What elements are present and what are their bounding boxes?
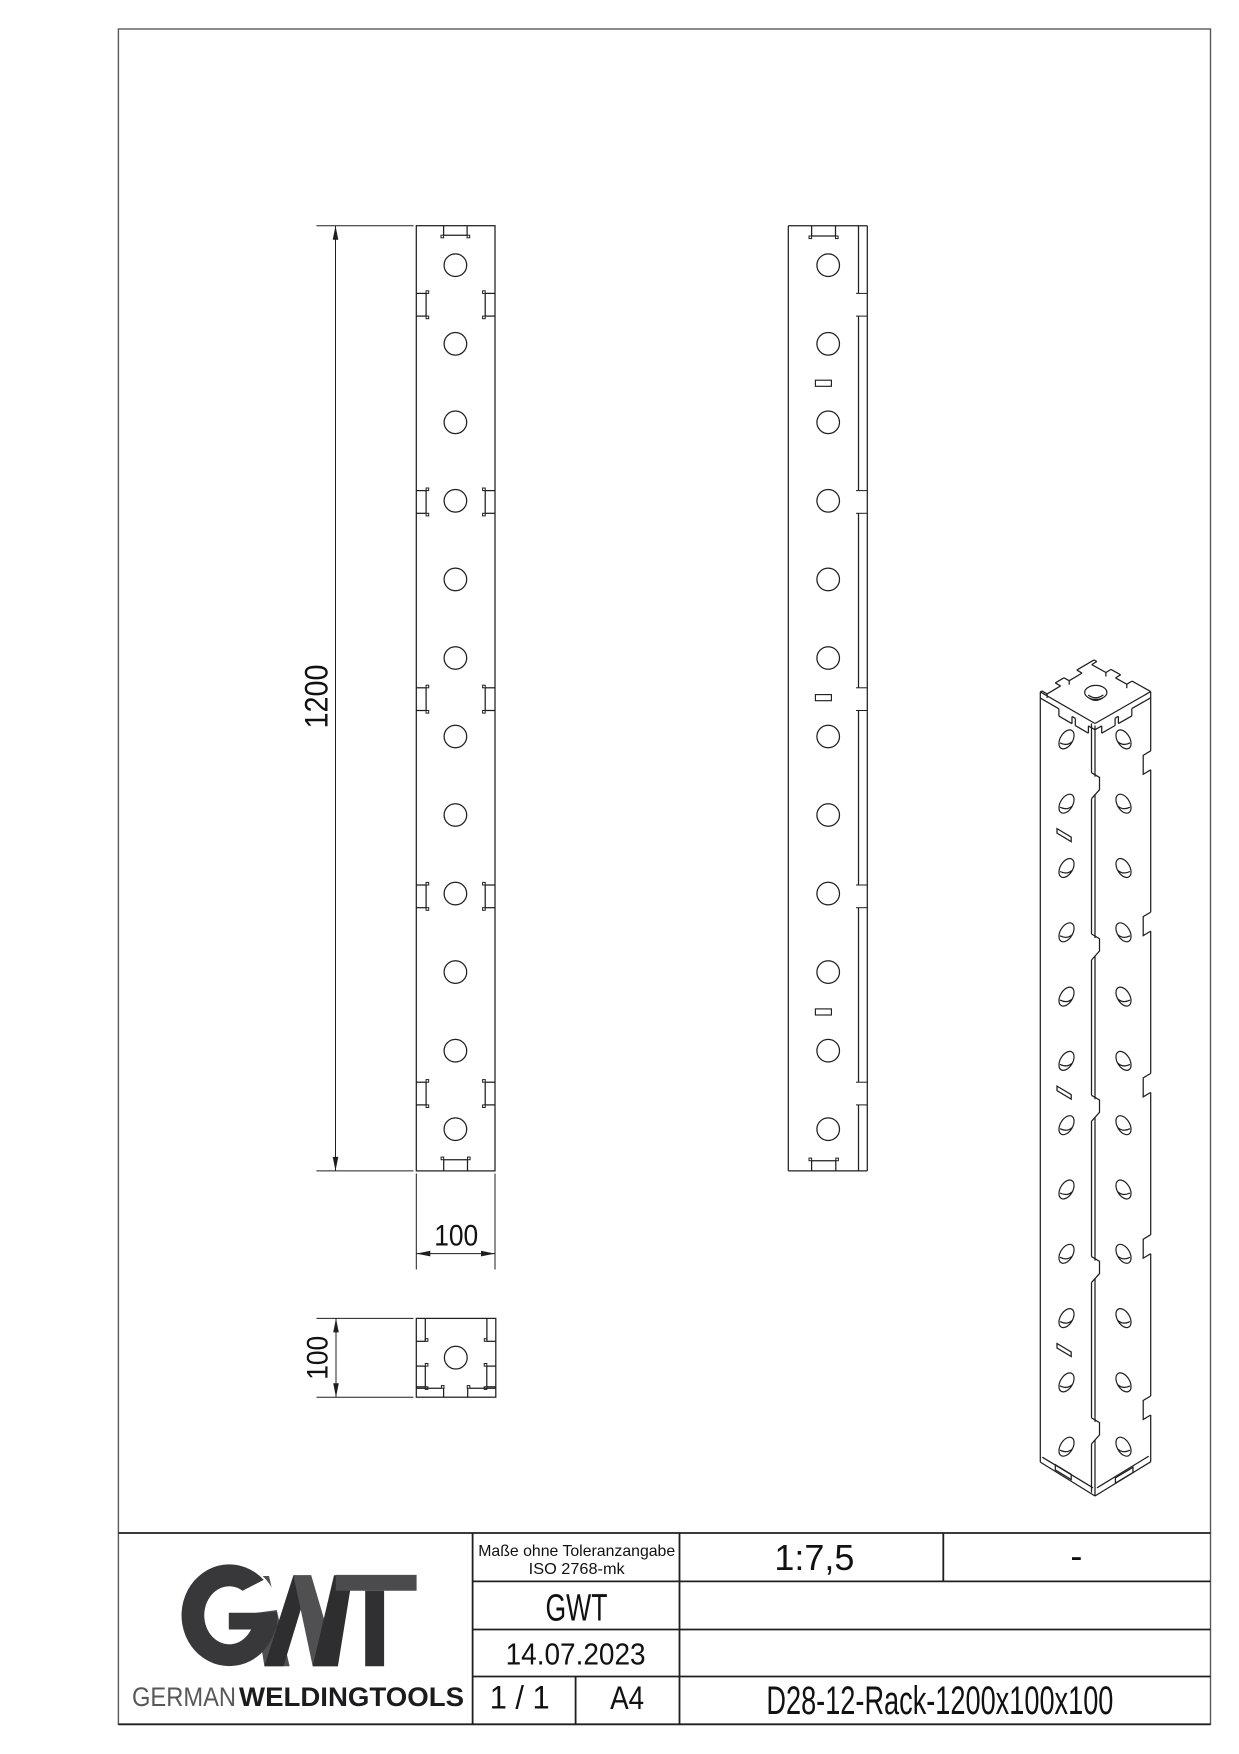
svg-text:1:7,5: 1:7,5 xyxy=(774,1537,854,1578)
svg-text:Maße ohne Toleranzangabe: Maße ohne Toleranzangabe xyxy=(478,1543,675,1560)
svg-text:1200: 1200 xyxy=(298,665,334,729)
svg-text:D28-12-Rack-1200x100x100: D28-12-Rack-1200x100x100 xyxy=(766,1679,1113,1723)
svg-text:-: - xyxy=(1070,1535,1082,1576)
svg-text:A4: A4 xyxy=(610,1680,644,1716)
svg-text:100: 100 xyxy=(301,1336,334,1380)
svg-text:WELDINGTOOLS: WELDINGTOOLS xyxy=(239,1682,464,1712)
svg-text:GWT: GWT xyxy=(546,1588,608,1630)
svg-text:ISO 2768-mk: ISO 2768-mk xyxy=(529,1561,626,1578)
svg-text:1 / 1: 1 / 1 xyxy=(490,1680,550,1716)
svg-text:100: 100 xyxy=(434,1220,478,1253)
svg-text:GERMAN: GERMAN xyxy=(132,1682,236,1712)
svg-text:14.07.2023: 14.07.2023 xyxy=(506,1637,646,1672)
